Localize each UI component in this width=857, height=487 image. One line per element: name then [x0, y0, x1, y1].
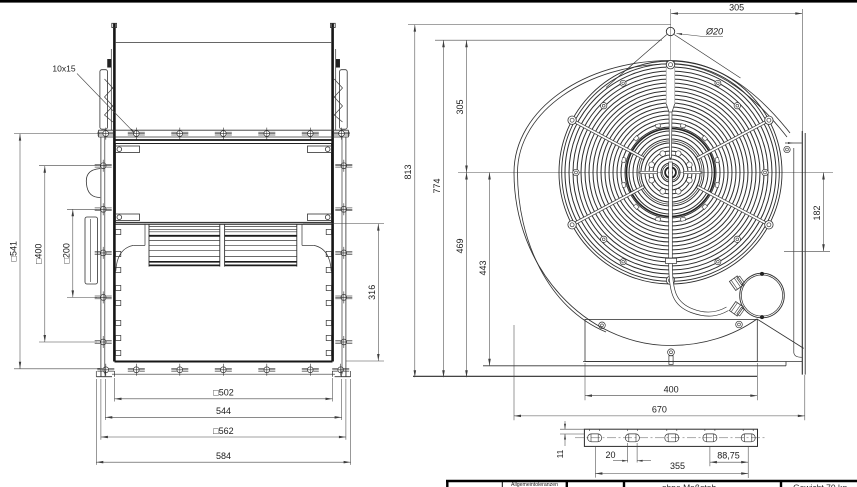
svg-text:10x15: 10x15: [52, 64, 75, 74]
svg-text:20: 20: [605, 450, 615, 460]
svg-text:Gewicht 70 kg: Gewicht 70 kg: [793, 483, 847, 487]
svg-text:584: 584: [216, 451, 231, 461]
svg-text:182: 182: [812, 205, 822, 220]
svg-text:469: 469: [455, 238, 465, 253]
svg-text:774: 774: [432, 178, 442, 193]
svg-text:305: 305: [729, 2, 744, 12]
svg-text:355: 355: [670, 461, 685, 471]
svg-text:□502: □502: [213, 388, 233, 398]
svg-text:88,75: 88,75: [717, 450, 740, 460]
svg-text:670: 670: [652, 405, 667, 415]
svg-text:Ø20: Ø20: [705, 27, 723, 37]
svg-text:400: 400: [664, 385, 679, 395]
svg-text:305: 305: [455, 99, 465, 114]
svg-text:544: 544: [216, 406, 231, 416]
svg-text:11: 11: [555, 449, 565, 458]
svg-text:443: 443: [478, 260, 488, 275]
svg-text:ohne Maßstab: ohne Maßstab: [662, 483, 717, 487]
svg-text:□562: □562: [213, 426, 233, 436]
svg-text:□400: □400: [33, 244, 43, 264]
svg-text:□541: □541: [9, 241, 19, 261]
svg-text:316: 316: [367, 285, 377, 300]
svg-text:□200: □200: [61, 243, 71, 263]
svg-text:813: 813: [403, 164, 413, 179]
svg-text:Allgemeintoleranzen: Allgemeintoleranzen: [511, 482, 558, 487]
